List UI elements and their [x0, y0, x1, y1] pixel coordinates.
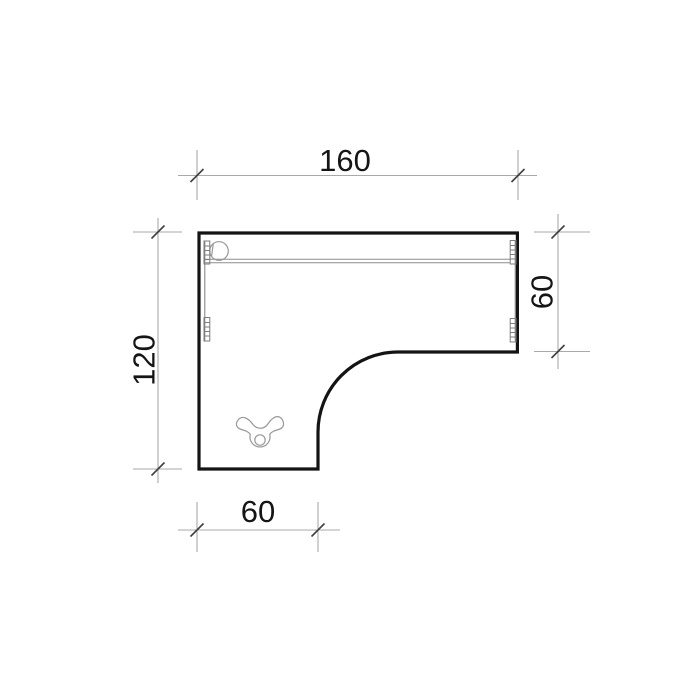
dimension-label-top: 160: [319, 143, 371, 178]
desk-outline: [199, 233, 517, 469]
dimension-left-depth: 120: [127, 218, 183, 483]
dimension-label-left: 120: [127, 334, 162, 386]
dimension-label-bottom: 60: [241, 494, 275, 529]
dimension-label-right: 60: [525, 275, 560, 309]
dimension-right-depth: 60: [525, 214, 591, 369]
drawing-canvas: 160 60 120 60: [0, 0, 700, 700]
dimension-bottom-width: 60: [178, 494, 340, 552]
dimension-top-width: 160: [178, 143, 537, 200]
technical-drawing-page: 160 60 120 60: [0, 0, 700, 700]
